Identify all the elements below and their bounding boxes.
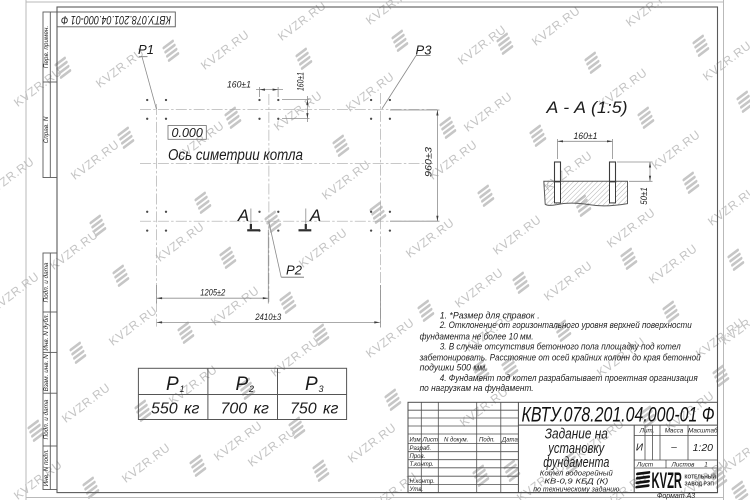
svg-text:Изм.: Изм. [410, 438, 423, 444]
svg-text:4. Фундамент под котел разраб: 4. Фундамент под котел разрабатывает про… [440, 373, 698, 383]
svg-text:кг: кг [254, 401, 270, 418]
svg-text:3. В случае отсутствия бетонн: 3. В случае отсутствия бетонного пола пл… [440, 341, 682, 351]
svg-text:1:20: 1:20 [693, 442, 714, 454]
svg-text:2: 2 [248, 384, 254, 394]
svg-text:Разраб.: Разраб. [410, 446, 432, 452]
svg-text:КВТУ.078.201.04.000-01 Ф: КВТУ.078.201.04.000-01 Ф [522, 404, 715, 427]
svg-text:забетонировать. Расстояние от: забетонировать. Расстояние от осей крайн… [419, 353, 701, 363]
svg-text:Утв.: Утв. [409, 487, 424, 493]
svg-text:3: 3 [319, 384, 324, 394]
svg-text:по нагрузкам на фундамент.: по нагрузкам на фундамент. [420, 383, 534, 393]
svg-text:Т.контр.: Т.контр. [410, 462, 434, 468]
svg-text:Формат А3: Формат А3 [657, 493, 695, 500]
svg-text:1: 1 [180, 384, 185, 394]
svg-text:по техническому заданию: по техническому заданию [533, 484, 619, 493]
svg-text:P3: P3 [416, 43, 433, 58]
svg-text:Масштаб: Масштаб [688, 427, 718, 435]
svg-text:50±1: 50±1 [639, 187, 650, 205]
svg-text:2410±3: 2410±3 [254, 312, 281, 323]
svg-text:Масса: Масса [665, 428, 684, 435]
svg-text:550: 550 [151, 401, 178, 418]
svg-text:1: 1 [704, 462, 708, 469]
svg-text:Дата: Дата [501, 438, 518, 444]
svg-text:КОТЕЛЬНЫЙ: КОТЕЛЬНЫЙ [685, 473, 717, 481]
svg-text:Инв. N дубл.: Инв. N дубл. [42, 314, 50, 351]
svg-text:160±1: 160±1 [227, 80, 251, 91]
svg-text:Подп.: Подп. [479, 438, 495, 444]
svg-text:кг: кг [184, 401, 200, 418]
svg-text:А: А [237, 206, 249, 225]
svg-text:P: P [305, 374, 318, 395]
svg-text:2. Отклонение от горизонтальн: 2. Отклонение от горизонтального уровня … [439, 320, 692, 330]
svg-text:Ось симетрии котла: Ось симетрии котла [168, 147, 303, 164]
svg-text:P2: P2 [286, 263, 303, 278]
svg-text:ЗАВОД РЭП: ЗАВОД РЭП [685, 481, 715, 487]
svg-text:160±1: 160±1 [574, 131, 598, 142]
svg-text:И: И [636, 443, 644, 454]
svg-text:подушки 500 мм.: подушки 500 мм. [420, 362, 488, 372]
svg-text:Взам. инв. N: Взам. инв. N [43, 354, 50, 392]
svg-text:КВТУ.078.201.04.000-01 Ф: КВТУ.078.201.04.000-01 Ф [61, 13, 171, 25]
svg-text:P: P [166, 374, 179, 395]
svg-text:–: – [670, 442, 677, 453]
svg-text:0.000: 0.000 [172, 126, 203, 140]
svg-text:Инв. N подл.: Инв. N подл. [42, 449, 50, 486]
svg-text:KVZR: KVZR [652, 468, 683, 493]
svg-text:Перв. примен.: Перв. примен. [43, 26, 50, 68]
svg-text:N докум.: N докум. [444, 438, 468, 444]
svg-text:P1: P1 [138, 42, 154, 57]
svg-text:кг: кг [323, 401, 339, 418]
svg-text:700: 700 [221, 401, 248, 418]
svg-text:Справ. N: Справ. N [43, 116, 50, 143]
svg-text:А - А (1:5): А - А (1:5) [545, 99, 627, 117]
svg-text:Подп. и дата: Подп. и дата [42, 399, 50, 439]
svg-text:750: 750 [290, 401, 317, 418]
svg-text:960±3: 960±3 [424, 146, 435, 177]
svg-text:1205±2: 1205±2 [200, 288, 226, 299]
svg-text:А: А [309, 206, 321, 225]
svg-text:Лист: Лист [422, 438, 438, 444]
svg-text:160±1: 160±1 [296, 72, 307, 91]
svg-text:Подп. и дата: Подп. и дата [42, 262, 50, 302]
svg-text:Н.контр.: Н.контр. [410, 479, 435, 485]
svg-text:Лит.: Лит. [639, 428, 655, 435]
svg-text:фундамента не более 10 мм.: фундамента не более 10 мм. [420, 332, 534, 342]
svg-text:P: P [236, 374, 249, 395]
svg-text:Пров.: Пров. [410, 454, 426, 460]
